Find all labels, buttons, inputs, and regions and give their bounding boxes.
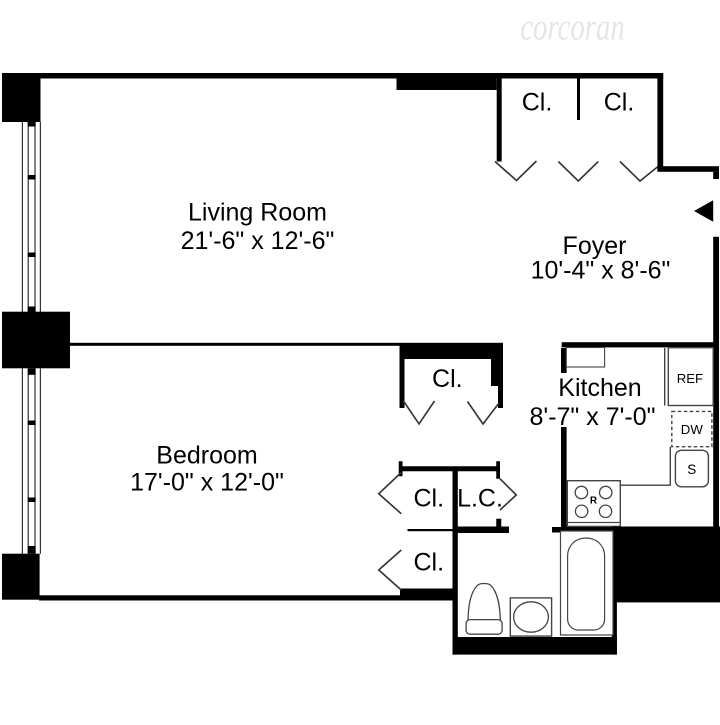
svg-text:DW: DW	[681, 422, 704, 437]
svg-text:Cl.: Cl.	[413, 549, 444, 577]
svg-text:corcoran: corcoran	[520, 7, 625, 49]
svg-text:8'-7" x 7'-0": 8'-7" x 7'-0"	[530, 403, 656, 431]
svg-text:Cl.: Cl.	[522, 89, 553, 117]
svg-text:Cl.: Cl.	[432, 365, 463, 393]
svg-text:S: S	[687, 462, 696, 477]
svg-text:17'-0" x 12'-0": 17'-0" x 12'-0"	[130, 469, 284, 497]
svg-text:Cl.: Cl.	[604, 89, 635, 117]
svg-text:Living Room: Living Room	[188, 199, 327, 227]
svg-text:R: R	[590, 496, 598, 507]
svg-text:Bedroom: Bedroom	[156, 441, 257, 469]
svg-text:Cl.: Cl.	[413, 485, 444, 513]
svg-text:L.C.: L.C.	[457, 485, 503, 513]
svg-text:Kitchen: Kitchen	[558, 374, 641, 402]
svg-text:REF: REF	[677, 371, 703, 386]
svg-text:21'-6" x 12'-6": 21'-6" x 12'-6"	[181, 227, 335, 255]
svg-text:10'-4" x 8'-6": 10'-4" x 8'-6"	[531, 257, 671, 285]
